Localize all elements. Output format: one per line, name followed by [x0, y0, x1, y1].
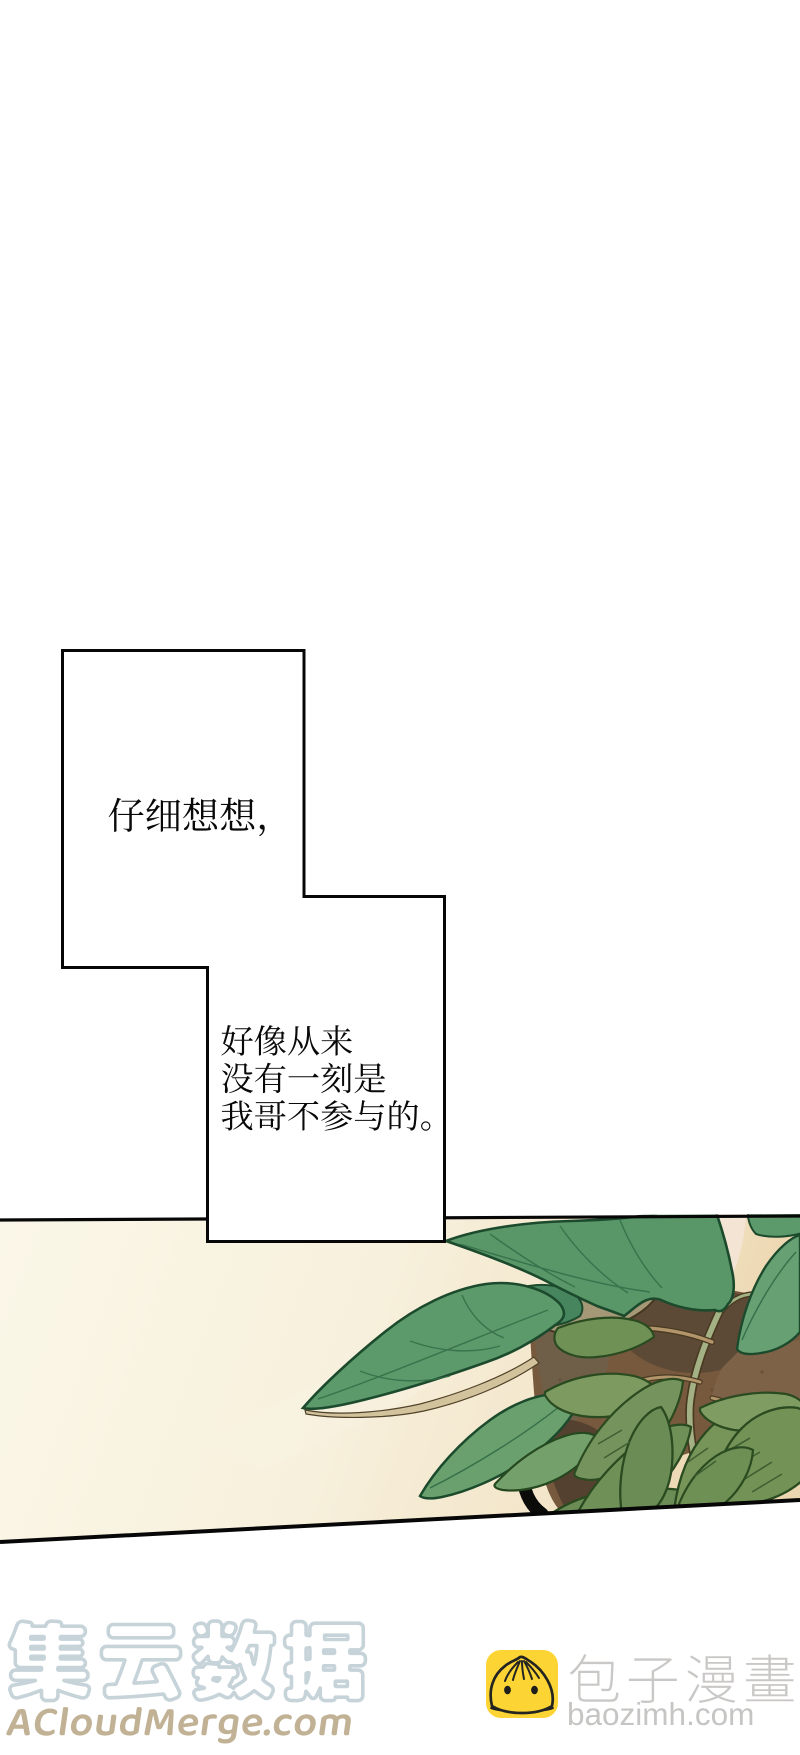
svg-text:baozimh.com: baozimh.com — [567, 1696, 754, 1732]
